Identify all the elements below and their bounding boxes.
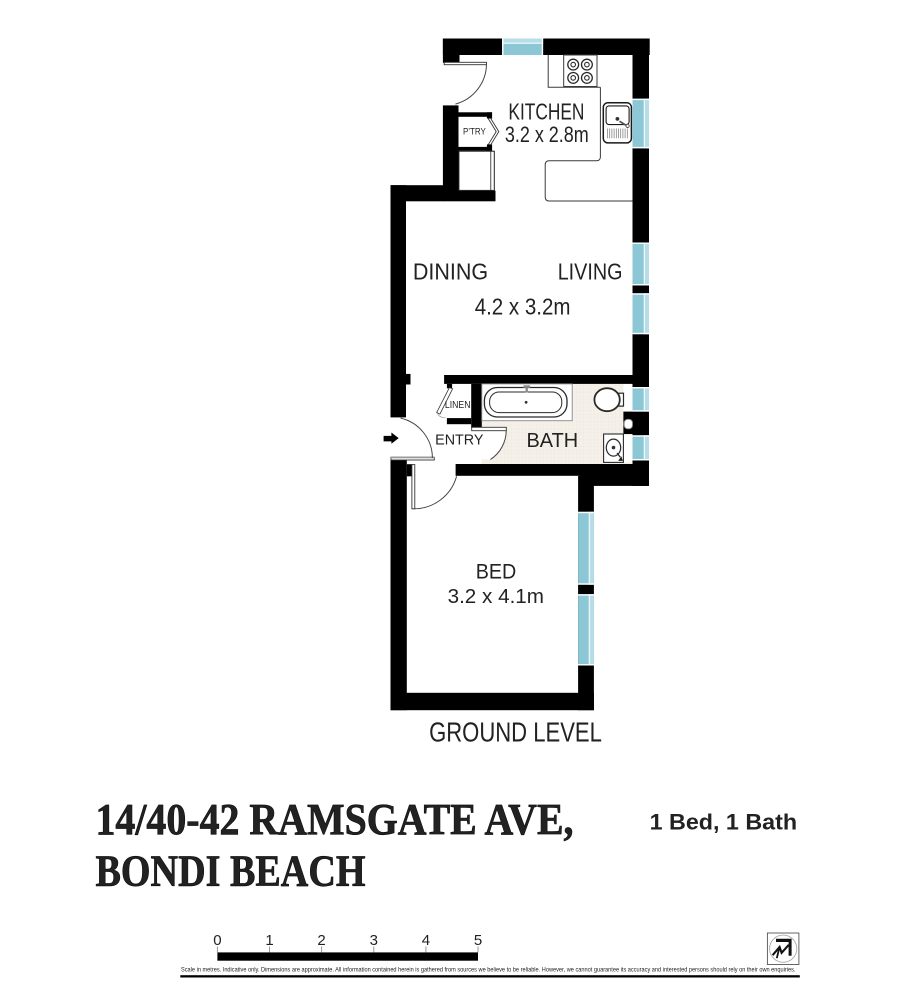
svg-text:DINING: DINING — [413, 258, 488, 284]
svg-text:BED: BED — [476, 560, 517, 583]
svg-text:GROUND LEVEL: GROUND LEVEL — [429, 717, 602, 748]
svg-text:ENTRY: ENTRY — [435, 432, 484, 448]
svg-text:0: 0 — [213, 932, 221, 949]
svg-text:3.2 x 2.8m: 3.2 x 2.8m — [505, 122, 589, 147]
svg-text:1 Bed, 1 Bath: 1 Bed, 1 Bath — [650, 810, 798, 835]
svg-text:3.2 x 4.1m: 3.2 x 4.1m — [448, 586, 544, 608]
svg-text:KITCHEN: KITCHEN — [508, 99, 584, 125]
svg-text:14/40-42 RAMSGATE AVE,: 14/40-42 RAMSGATE AVE, — [96, 794, 574, 844]
svg-text:Scale in metres. Indicative on: Scale in metres. Indicative only. Dimens… — [181, 967, 796, 974]
svg-text:5: 5 — [474, 932, 482, 949]
svg-text:LINEN: LINEN — [445, 400, 471, 411]
svg-text:4: 4 — [422, 932, 430, 949]
svg-text:2: 2 — [317, 932, 325, 949]
svg-text:BONDI BEACH: BONDI BEACH — [96, 846, 366, 896]
svg-text:BATH: BATH — [527, 430, 579, 452]
svg-text:3: 3 — [370, 932, 378, 949]
svg-text:1: 1 — [265, 932, 273, 949]
svg-text:P’TRY: P’TRY — [463, 127, 486, 137]
svg-text:4.2 x 3.2m: 4.2 x 3.2m — [475, 293, 571, 319]
svg-text:LIVING: LIVING — [558, 258, 623, 284]
